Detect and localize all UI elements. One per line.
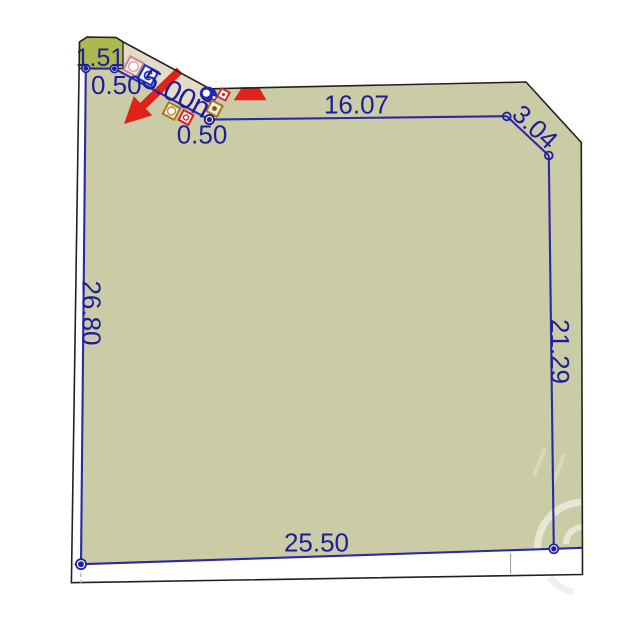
svg-text:1.51: 1.51 [76, 44, 125, 72]
svg-text:0.50: 0.50 [91, 70, 142, 100]
svg-text:16.07: 16.07 [324, 90, 389, 120]
svg-text:26.80: 26.80 [77, 280, 107, 345]
svg-text:0.50: 0.50 [177, 120, 228, 150]
svg-text:25.50: 25.50 [284, 528, 349, 558]
svg-text:21.29: 21.29 [545, 319, 575, 384]
